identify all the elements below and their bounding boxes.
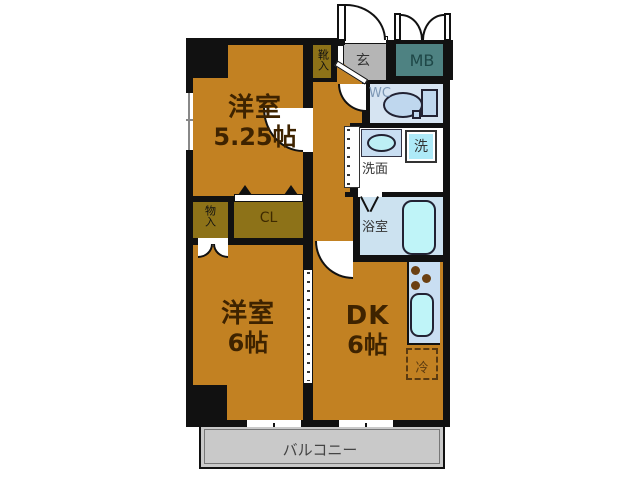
dk-size: 6帖 — [330, 332, 405, 358]
window-left — [186, 93, 193, 150]
room1-size: 5.25帖 — [196, 124, 314, 150]
washing-machine-label: 洗 — [407, 140, 435, 155]
closet-door-mark-right — [284, 185, 298, 195]
wall-bath-bottom — [353, 255, 443, 262]
washroom-door-rail — [347, 129, 350, 185]
window-left-tick — [186, 119, 193, 121]
window-balcony-dk — [339, 420, 393, 427]
dk-label: DK — [330, 302, 405, 330]
shoe-storage-label: 靴入 — [317, 49, 329, 79]
mb-door-leaf-right — [444, 13, 451, 41]
stove-burner-icon — [411, 266, 420, 275]
wall-wc-bottom — [350, 123, 443, 128]
wall-top — [186, 38, 345, 45]
wc-label: WC — [366, 86, 394, 101]
room1-label: 洋室 — [200, 94, 310, 122]
meter-box-label: MB — [398, 51, 446, 70]
mb-door-swing-left — [401, 14, 423, 40]
entrance-label: 玄 — [350, 50, 376, 70]
wall-center-lower — [303, 383, 313, 420]
front-door-leaf — [337, 4, 346, 41]
washroom-label: 洗面 — [362, 162, 404, 177]
closet-sliding-door — [234, 194, 303, 202]
toilet-tank-icon — [421, 89, 438, 117]
bathtub-icon — [402, 200, 436, 255]
wall-closet-bottom — [228, 238, 303, 245]
room2-size: 6帖 — [193, 330, 303, 356]
mb-door-swing-right — [422, 14, 444, 40]
closet-label: CL — [234, 210, 303, 226]
window-left-glass-line — [188, 93, 190, 150]
sink-bowl-icon — [367, 134, 396, 152]
wall-entrance-mb — [386, 40, 394, 80]
window-tick — [273, 423, 275, 427]
closet-door-mark-left — [238, 185, 252, 195]
bathroom-label: 浴室 — [362, 220, 400, 235]
balcony-label: バルコニー — [250, 439, 390, 460]
washing-machine-icon: 洗 — [405, 130, 437, 163]
mb-door-leaf-left — [394, 13, 401, 41]
room2-dk-sliding-door — [303, 270, 313, 383]
stove-burner-icon — [422, 274, 431, 283]
wall-right — [443, 40, 450, 427]
stove-burner-icon — [411, 281, 420, 290]
sliding-door-rail — [307, 272, 310, 381]
room2-label: 洋室 — [193, 300, 303, 328]
refrigerator-label: 冷 — [408, 357, 436, 376]
wall-bath-west — [353, 197, 360, 259]
window-balcony-room2 — [247, 420, 301, 427]
floorplan-canvas: 洗 冷 洋室 5.25帖 洋室 6帖 DK 6帖 バルコニー 玄 MB WC 洗… — [0, 0, 640, 480]
wall-wc-top — [368, 80, 443, 84]
storage-label: 物入 — [204, 205, 216, 235]
wall-center-upper — [303, 238, 313, 270]
toilet-flush-icon — [412, 110, 421, 119]
wall-room1-east-lower — [303, 152, 313, 242]
window-tick — [365, 423, 367, 427]
refrigerator-outline: 冷 — [406, 348, 438, 380]
washroom-door — [344, 126, 360, 188]
front-door-swing — [346, 4, 386, 40]
wall-bottom — [186, 420, 450, 427]
kitchen-sink-icon — [410, 293, 434, 337]
